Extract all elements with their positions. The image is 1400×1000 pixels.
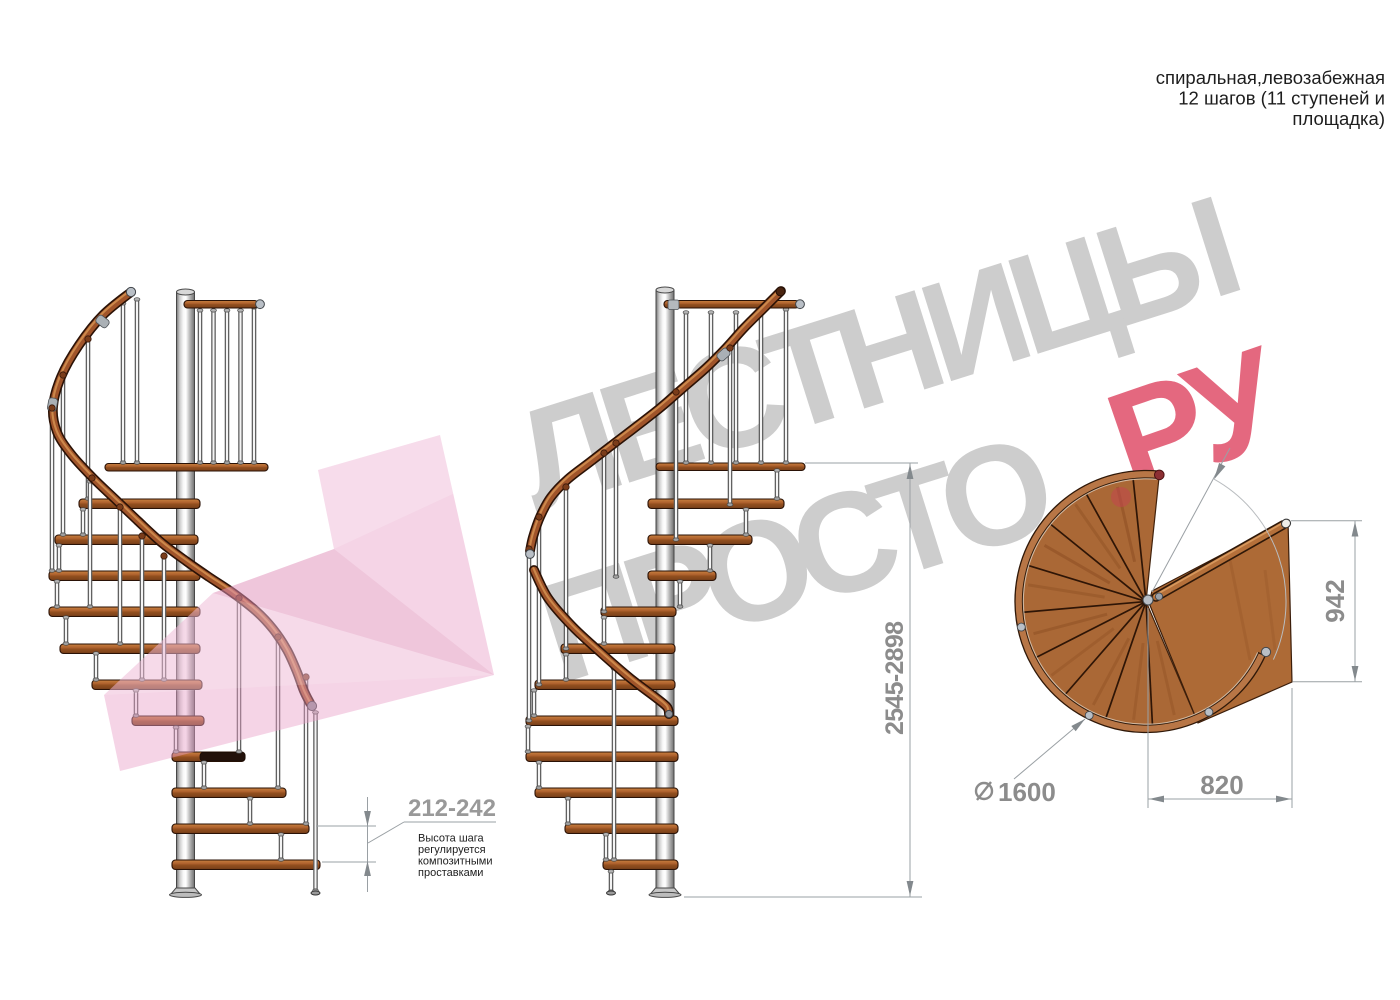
svg-text:12 шагов (11 ступеней и: 12 шагов (11 ступеней и	[1178, 88, 1385, 109]
svg-text:регулируется: регулируется	[418, 844, 486, 856]
svg-text:2545-2898: 2545-2898	[881, 621, 909, 735]
svg-text:спиральная,левозабежная: спиральная,левозабежная	[1156, 67, 1385, 88]
svg-text:942: 942	[1320, 579, 1350, 622]
svg-text:212-242: 212-242	[408, 795, 496, 822]
svg-text:проставками: проставками	[418, 867, 483, 879]
svg-text:площадка): площадка)	[1292, 108, 1385, 129]
svg-text:1600: 1600	[998, 777, 1056, 807]
svg-text:820: 820	[1200, 770, 1243, 800]
svg-text:композитными: композитными	[418, 856, 492, 868]
svg-text:Высота шага: Высота шага	[418, 833, 485, 845]
